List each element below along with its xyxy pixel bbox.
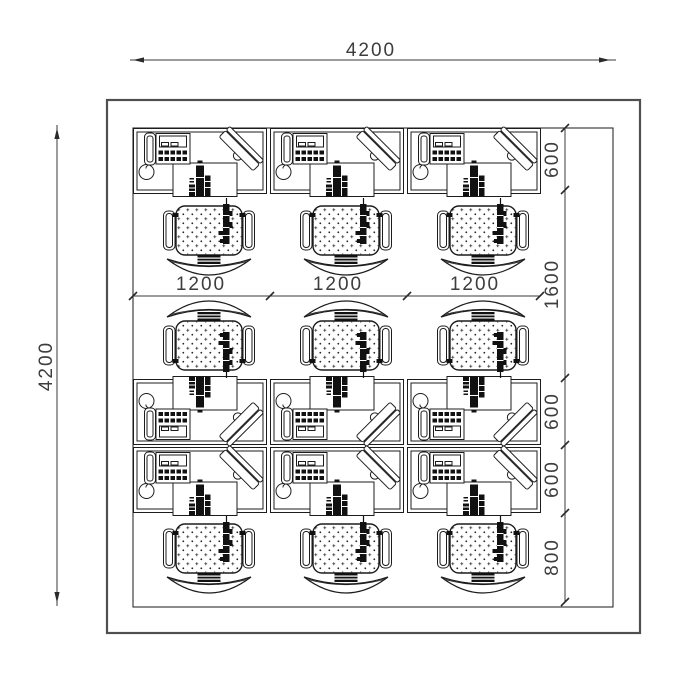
office-chair: [164, 198, 255, 275]
desk-unit: [134, 377, 267, 447]
desk-unit: [134, 126, 267, 196]
office-chair: [438, 198, 529, 275]
dimension-label: 4200: [36, 341, 57, 391]
desk-unit: [408, 126, 541, 196]
dimension-label: 600: [542, 140, 563, 178]
dimension-label: 1200: [450, 274, 500, 295]
office-chair: [438, 516, 529, 593]
desk-unit: [271, 445, 404, 515]
dimension-right-chain: 600 1600 600 600 800: [542, 124, 569, 606]
desk-unit: [408, 445, 541, 515]
dimension-bay-widths: 1200 1200 1200: [129, 274, 544, 300]
office-chair: [438, 301, 529, 378]
arrowhead-bottom: [54, 592, 59, 603]
dimension-label: 600: [542, 392, 563, 430]
dimension-top-width: 4200: [130, 40, 616, 63]
office-chair: [301, 301, 392, 378]
office-chair: [164, 516, 255, 593]
desk-unit: [408, 377, 541, 447]
chair-row-facing-up: [164, 301, 529, 378]
workstation-row-middle-upper: [134, 377, 541, 447]
office-chair: [301, 516, 392, 593]
desk-unit: [271, 126, 404, 196]
dimension-label: 1600: [542, 259, 563, 309]
dimension-label: 1200: [176, 274, 226, 295]
dimension-label: 4200: [346, 40, 396, 61]
workstation-row-middle-lower: [134, 445, 541, 515]
chair-row-upper: [164, 198, 529, 275]
dimension-label: 600: [542, 460, 563, 498]
dimension-label: 800: [542, 538, 563, 576]
arrowhead-right: [599, 57, 610, 62]
dimension-left-height: 4200: [36, 125, 60, 606]
office-chair: [301, 198, 392, 275]
office-chair: [164, 301, 255, 378]
workstation-row-top: [134, 126, 541, 196]
dimension-label: 1200: [313, 274, 363, 295]
floor-plan-drawing: 4200 4200 1200 1200 1200 600 1600 600 60…: [0, 0, 700, 700]
floor-plan-canvas: 4200 4200 1200 1200 1200 600 1600 600 60…: [0, 0, 700, 700]
arrowhead-top: [54, 128, 59, 139]
desk-unit: [271, 377, 404, 447]
arrowhead-left: [133, 57, 144, 62]
chair-row-bottom: [164, 516, 529, 593]
desk-unit: [134, 445, 267, 515]
